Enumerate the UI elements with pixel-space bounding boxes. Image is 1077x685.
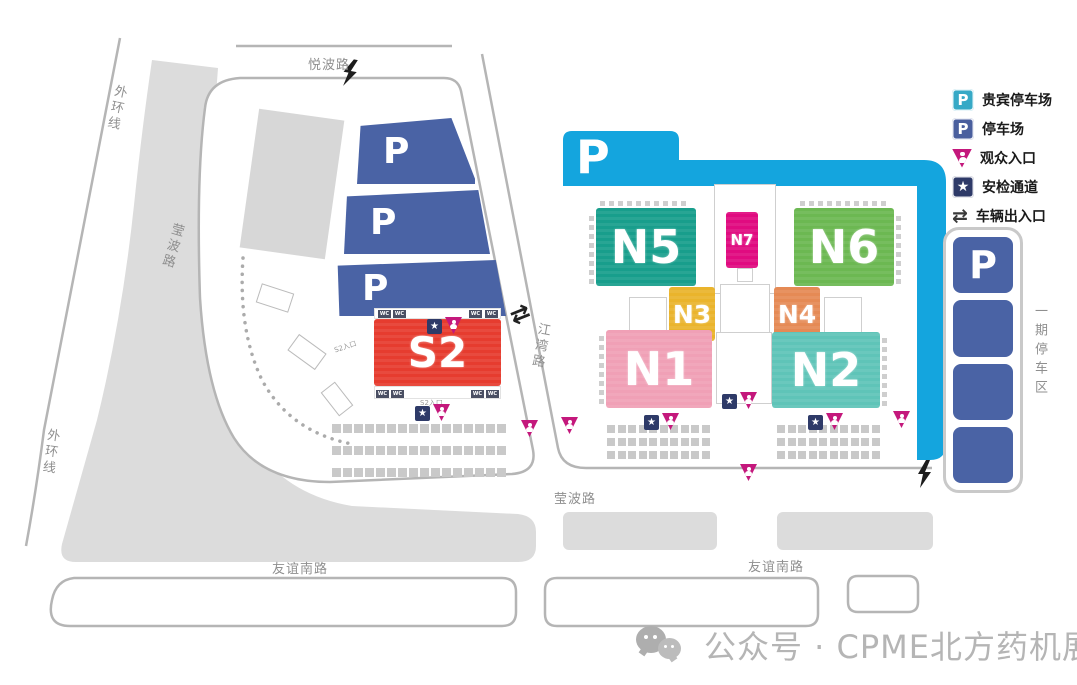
n2-parking-grid (777, 425, 880, 459)
label-phase1-parking: 一期停车区 (1030, 304, 1049, 399)
road-small-outline (848, 576, 918, 612)
parking-cell-1: P (953, 237, 1013, 293)
south-gray-block-2 (777, 512, 933, 550)
hall-n1: N1 (606, 330, 712, 408)
hall-n2-label: N2 (791, 343, 862, 397)
security-check-icon: ★ (722, 394, 737, 409)
wc-label: WC (391, 390, 404, 398)
hall-n5: N5 (596, 208, 696, 286)
docks-n6-east (896, 212, 901, 284)
vip-band-p-label: P (576, 130, 610, 184)
vehicle-gate-bolt-south (918, 460, 931, 488)
hall-s2-label: S2 (408, 328, 467, 377)
legend-row-vehicle-gate: ⇄ 车辆出入口 (952, 204, 1052, 228)
parking-p-label: P (370, 202, 396, 243)
road-label-yuebo: 悦波路 (308, 54, 350, 73)
legend-label: 安检通道 (982, 177, 1038, 197)
s2-wc-strip-top: WC WC WC WC (374, 308, 501, 319)
hall-n7-label: N7 (731, 231, 754, 249)
south-gray-block-1 (563, 512, 717, 550)
security-check-icon: ★ (415, 406, 430, 421)
legend-label: 车辆出入口 (976, 206, 1046, 226)
road-label-yingbo-south: 莹波路 (554, 488, 596, 507)
legend-label: 停车场 (982, 119, 1024, 139)
road-label-youyi-east: 友谊南路 (748, 556, 804, 575)
venue-map: 悦波路 外环线 外环线 莹波路 江湾路 莹波路 友谊南路 友谊南路 一期停车区 … (0, 0, 1077, 685)
security-check-icon: ★ (952, 176, 974, 198)
parking-p-label: P (362, 268, 388, 309)
legend-row-vip-parking: P 贵宾停车场 (952, 88, 1052, 112)
security-check-icon: ★ (644, 415, 659, 430)
legend-label: 观众入口 (980, 148, 1036, 168)
legend-row-parking: P 停车场 (952, 117, 1052, 141)
wc-label: WC (376, 390, 389, 398)
hall-n1-label: N1 (624, 342, 695, 396)
visitor-entrance-icon (952, 149, 972, 168)
hall-n6-label: N6 (809, 220, 880, 274)
docks-n5-west (589, 212, 594, 284)
legend-row-visitor-entrance: 观众入口 (952, 146, 1052, 170)
security-check-icon: ★ (808, 415, 823, 430)
wc-label: WC (469, 310, 482, 318)
map-legend: P 贵宾停车场 P 停车场 观众入口 ★ 安检通道 ⇄ 车辆出入口 (952, 88, 1052, 228)
n1-parking-grid (607, 425, 710, 459)
docks-n2-east (882, 338, 887, 406)
wechat-bubble-small (658, 638, 681, 659)
legend-row-security-channel: ★ 安检通道 (952, 175, 1052, 199)
road-label-youyi-west: 友谊南路 (272, 558, 328, 577)
legend-label: 贵宾停车场 (982, 90, 1052, 110)
docks-n5-north (600, 201, 690, 206)
wechat-icon (636, 622, 692, 668)
docks-n1-west (599, 336, 604, 404)
parking-cell-4 (953, 427, 1013, 483)
hall-n3-label: N3 (673, 300, 711, 329)
wc-label: WC (485, 310, 498, 318)
parking-cell-2 (953, 300, 1013, 356)
hall-n5-label: N5 (611, 220, 682, 274)
hall-n7: N7 (726, 212, 758, 268)
security-check-icon: ★ (427, 319, 442, 334)
wc-label: WC (486, 390, 499, 398)
parking-p-label: P (969, 243, 997, 287)
watermark-text: 公众号 · CPME北方药机展 (704, 622, 1077, 668)
docks-n6-north (800, 201, 890, 206)
hall-n4-label: N4 (778, 300, 816, 329)
road-youyi-west-outline (51, 578, 516, 626)
parking-cell-3 (953, 364, 1013, 420)
hall-n2: N2 (772, 332, 880, 408)
parking-icon: P (952, 118, 974, 140)
parking-lot-row-2: P (344, 190, 490, 254)
wc-label: WC (471, 390, 484, 398)
wc-label: WC (393, 310, 406, 318)
vip-parking-icon: P (952, 89, 974, 111)
hall-n6: N6 (794, 208, 894, 286)
watermark: 公众号 · CPME北方药机展 (636, 622, 1077, 668)
s2-parking-grid (332, 424, 506, 477)
central-small-square (737, 268, 753, 282)
parking-p-label: P (383, 131, 409, 172)
phase1-parking-column: P (943, 227, 1023, 493)
vehicle-gate-arrows-icon: ⇄ (952, 206, 968, 226)
wc-label: WC (378, 310, 391, 318)
road-youyi-east-outline (545, 578, 818, 626)
